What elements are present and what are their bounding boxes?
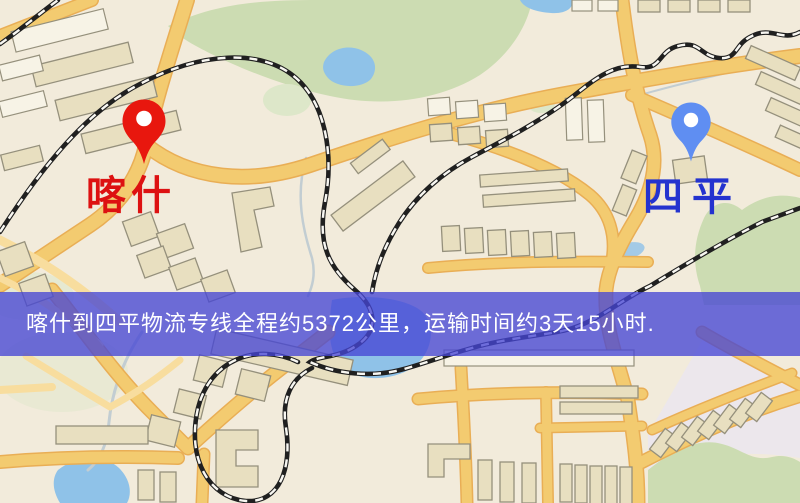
map-pin-icon [120,98,168,168]
map-viewport[interactable]: 喀什 四平 喀什到四平物流专线全程约5372公里，运输时间约3天15小时. [0,0,800,503]
destination-marker[interactable] [669,101,713,165]
map-pin-icon [669,101,713,165]
route-info-text: 喀什到四平物流专线全程约5372公里，运输时间约3天15小时. [0,306,655,338]
route-info-banner: 喀什到四平物流专线全程约5372公里，运输时间约3天15小时. [0,292,800,356]
origin-marker[interactable] [120,98,168,168]
destination-label: 四平 [643,177,741,217]
map-canvas [0,0,800,503]
origin-label: 喀什 [86,176,176,216]
